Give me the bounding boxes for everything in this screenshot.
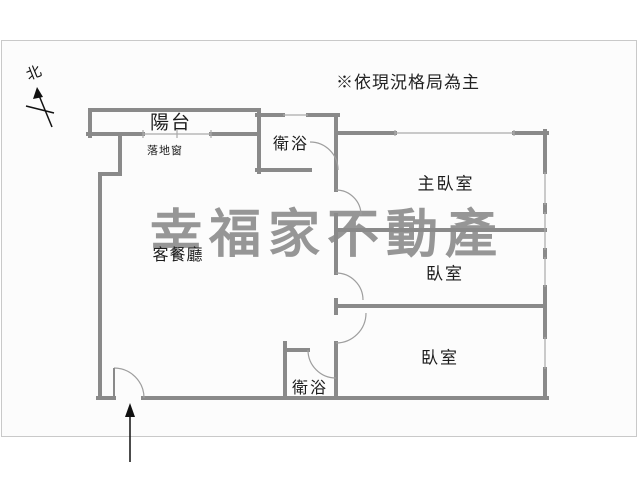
room-label-living-dining: 客餐廳 — [152, 241, 203, 265]
room-label-bedroom-1: 臥室 — [426, 260, 464, 285]
room-label-master-bedroom: 主臥室 — [418, 170, 475, 195]
room-label-bedroom-2: 臥室 — [421, 344, 459, 369]
entrance-arrow-icon — [125, 403, 135, 462]
floor-plan-drawing — [0, 0, 640, 480]
floor-plan-canvas: 幸福家不動產 — [0, 0, 640, 480]
north-arrow-icon — [26, 87, 54, 127]
door-arcs — [114, 142, 366, 398]
room-label-balcony: 陽台 — [150, 108, 192, 135]
notice-text: ※依現況格局為主 — [336, 68, 480, 93]
room-label-bathroom-bottom: 衛浴 — [292, 374, 328, 398]
room-label-bathroom-top: 衛浴 — [273, 130, 309, 154]
label-sliding-window: 落地窗 — [147, 142, 183, 158]
